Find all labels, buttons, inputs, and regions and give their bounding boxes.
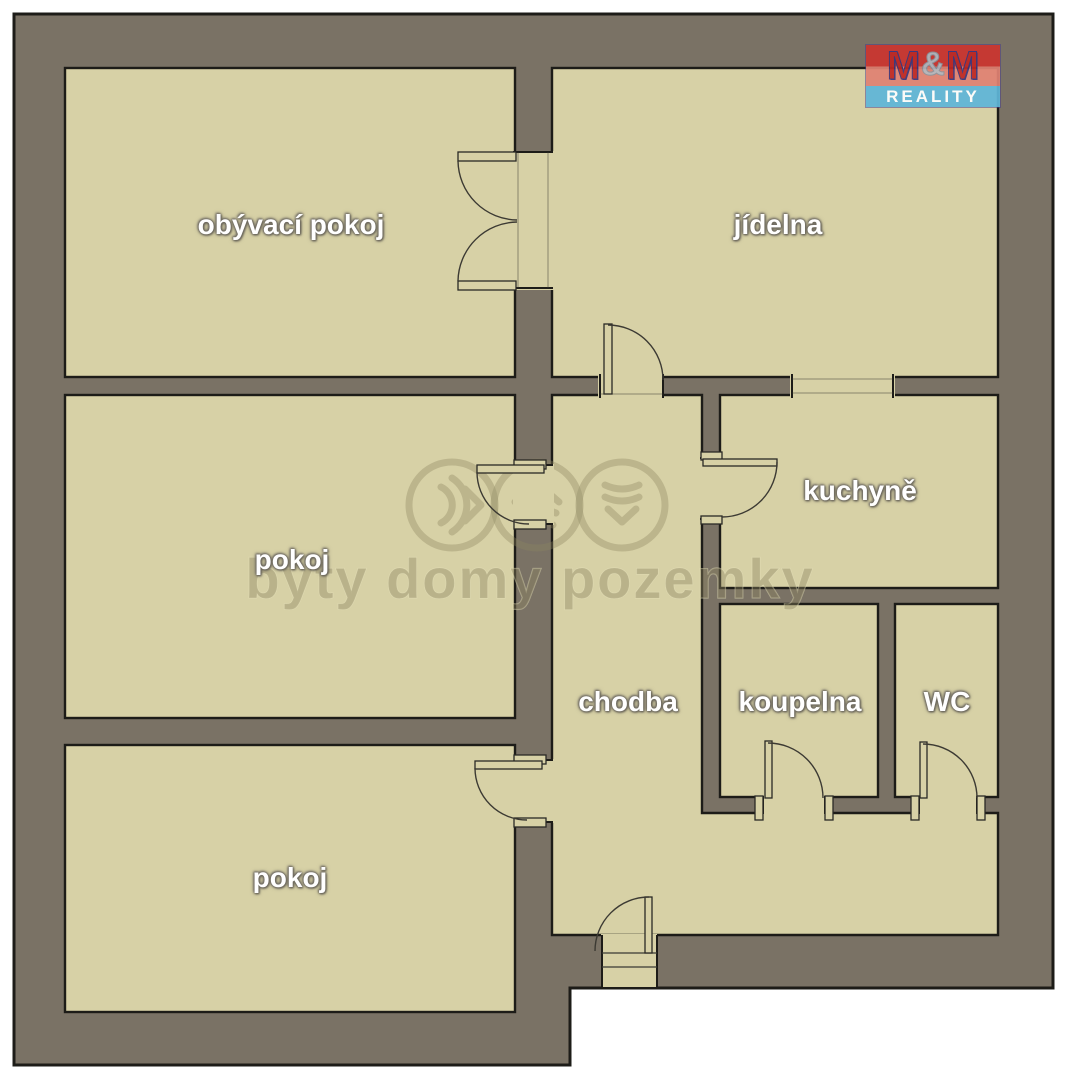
room-label-chodba: chodba bbox=[578, 686, 678, 718]
room-label-pokoj-stredni: pokoj bbox=[255, 544, 330, 576]
floor-plan-svg: byty domy pozemky bbox=[0, 0, 1067, 1080]
logo-ampersand: & bbox=[921, 47, 945, 80]
room-label-koupelna: koupelna bbox=[739, 686, 862, 718]
passage-jidelna-kuchyne bbox=[790, 374, 895, 398]
logo-reality: REALITY bbox=[866, 86, 1000, 107]
mm-reality-logo: M & M REALITY bbox=[865, 44, 1001, 108]
floor-plan: byty domy pozemky bbox=[0, 0, 1067, 1080]
room-label-pokoj-dolni: pokoj bbox=[253, 862, 328, 894]
room-label-obyvaci-pokoj: obývací pokoj bbox=[198, 209, 385, 241]
watermark-text: byty domy pozemky bbox=[245, 547, 814, 610]
logo-mm: M & M bbox=[866, 45, 1000, 86]
room-label-jidelna: jídelna bbox=[734, 209, 823, 241]
room-label-wc: WC bbox=[924, 686, 971, 718]
logo-letter-m2: M bbox=[946, 46, 979, 86]
logo-letter-m1: M bbox=[887, 46, 920, 86]
room-label-kuchyne: kuchyně bbox=[803, 475, 917, 507]
